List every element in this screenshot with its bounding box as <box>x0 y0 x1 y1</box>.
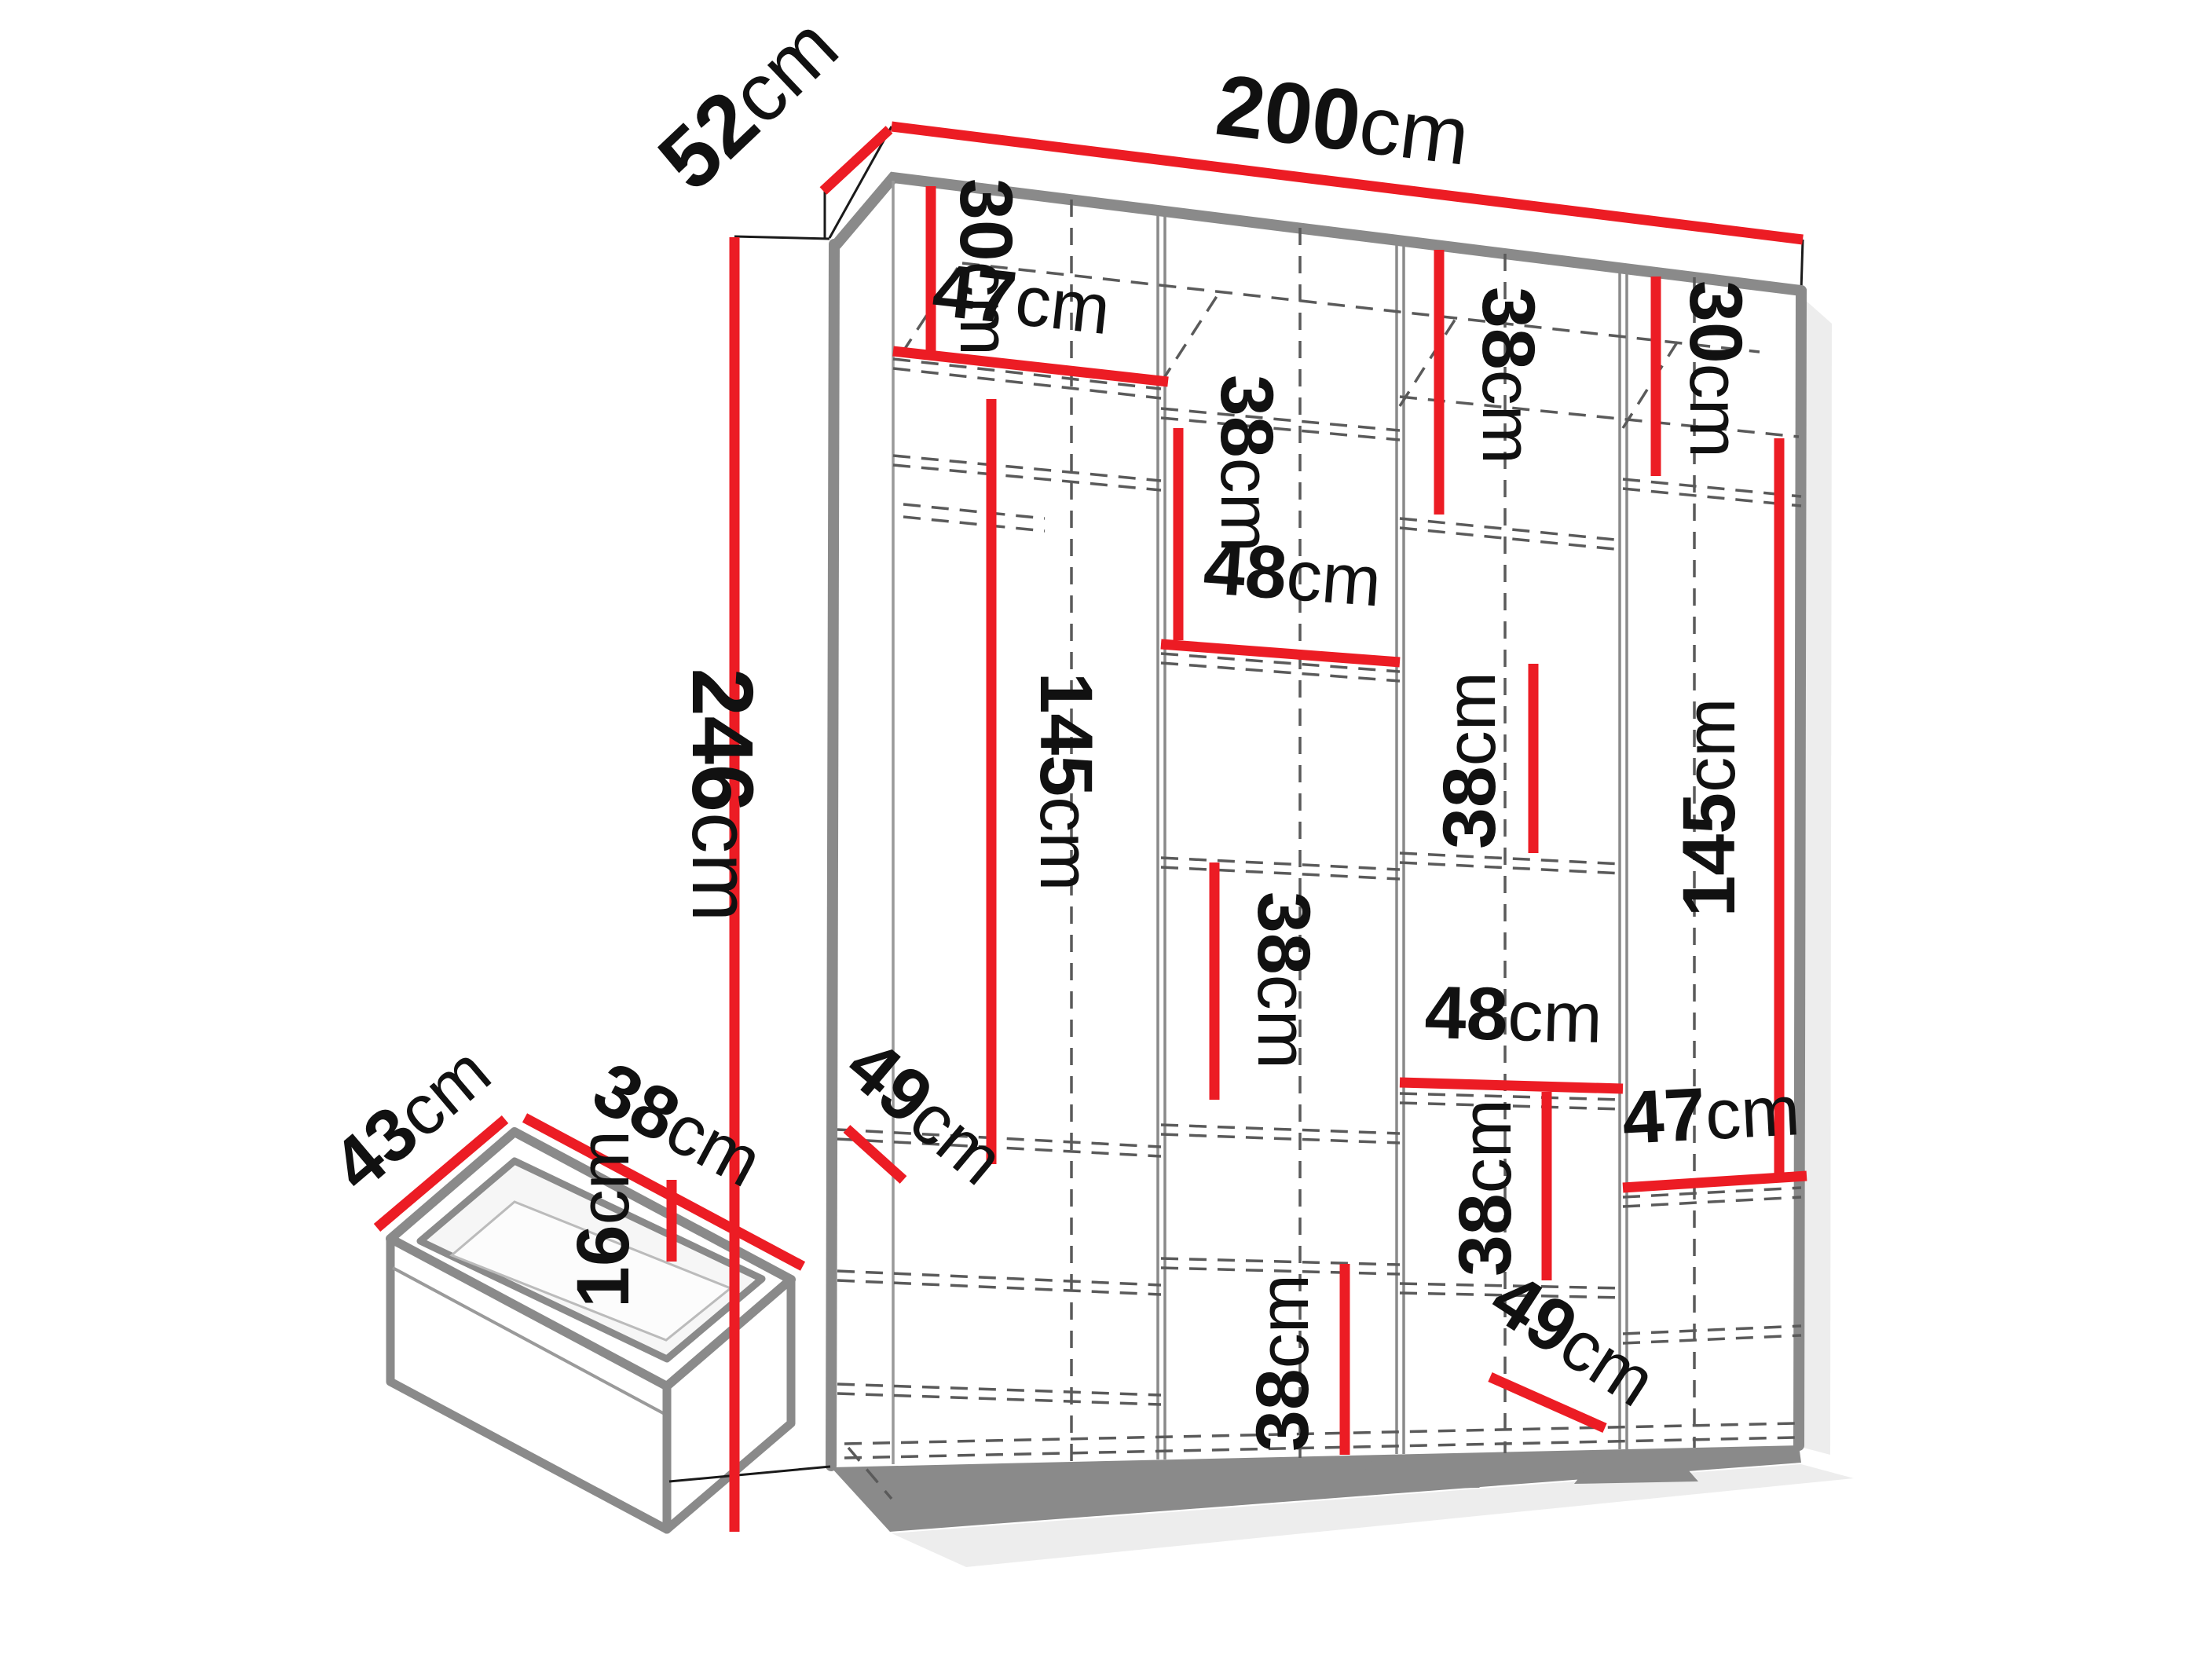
diagram-stage: 200cm52cm246cm30cm47cm145cm49cm38cm48cm3… <box>0 0 2212 1659</box>
dimension-label: 16cm <box>562 1130 645 1308</box>
dimension-label: 38cm <box>1205 375 1288 552</box>
wardrobe-dimension-diagram: 200cm52cm246cm30cm47cm145cm49cm38cm48cm3… <box>0 0 2212 1659</box>
dimension-label: 30cm <box>1674 280 1757 458</box>
dimension-label: 145cm <box>1668 698 1751 917</box>
right-edge <box>1799 291 1801 1445</box>
dimension-label: 38cm <box>1242 892 1325 1069</box>
dimension-label: 48cm <box>1423 971 1603 1059</box>
dimension-depth-top: 52cm <box>640 0 889 208</box>
dimension-label: 145cm <box>1024 672 1108 892</box>
dimension-label: 52cm <box>640 0 855 208</box>
dimension-label: 48cm <box>1201 526 1384 623</box>
dimension-label: 200cm <box>1211 57 1475 184</box>
dimension-label: 246cm <box>674 668 771 922</box>
dimension-label: 47cm <box>1621 1068 1802 1160</box>
left-edge <box>831 244 834 1466</box>
dimension-line <box>1400 1082 1623 1089</box>
dimension-label: 38cm <box>1428 672 1511 849</box>
dimension-label: 38cm <box>1444 1099 1527 1276</box>
dimension-label: 38cm <box>1241 1274 1324 1452</box>
witness-lines <box>734 189 829 239</box>
dimension-label: 38cm <box>1467 287 1550 464</box>
